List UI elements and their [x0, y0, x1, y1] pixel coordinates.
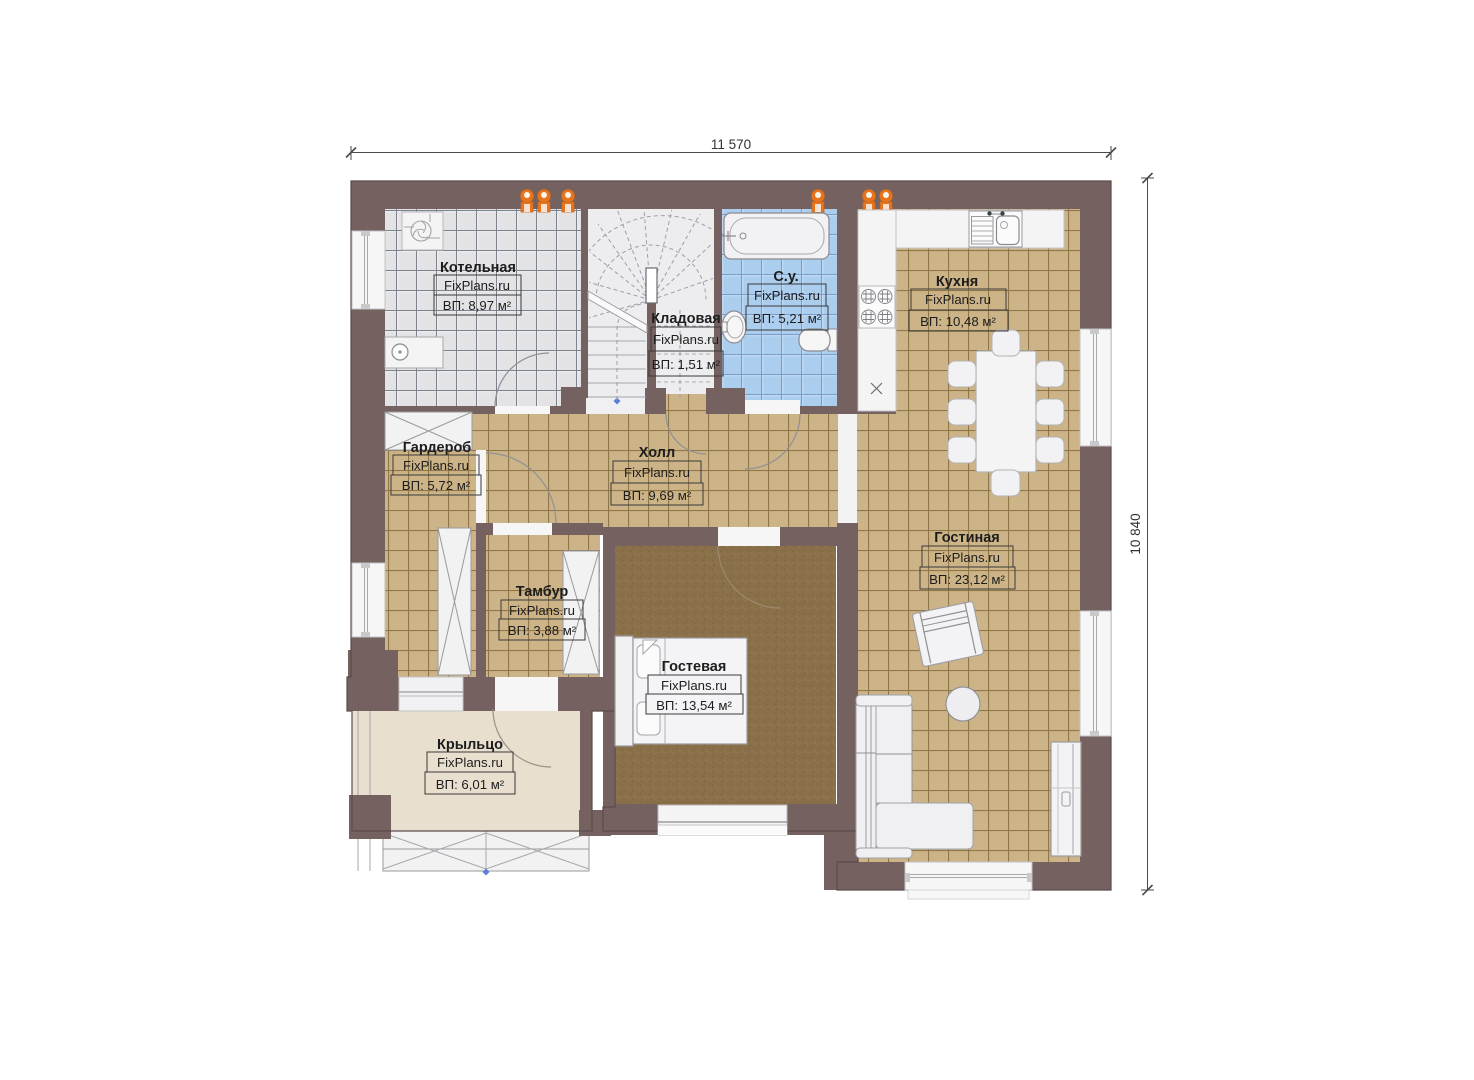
svg-text:ВП: 23,12 м²: ВП: 23,12 м²: [929, 572, 1005, 587]
svg-text:Котельная: Котельная: [440, 260, 516, 276]
svg-text:ВП: 3,88 м²: ВП: 3,88 м²: [508, 623, 577, 638]
svg-text:Кладовая: Кладовая: [651, 311, 720, 327]
svg-text:FixPlans.ru: FixPlans.ru: [661, 678, 727, 693]
svg-text:10 840: 10 840: [1128, 513, 1143, 554]
svg-text:Гардероб: Гардероб: [403, 440, 472, 456]
svg-text:ВП: 13,54 м²: ВП: 13,54 м²: [656, 698, 732, 713]
svg-text:Холл: Холл: [639, 445, 675, 461]
svg-text:ВП: 1,51 м²: ВП: 1,51 м²: [652, 357, 721, 372]
svg-text:Тамбур: Тамбур: [516, 584, 569, 600]
svg-text:FixPlans.ru: FixPlans.ru: [403, 458, 469, 473]
svg-text:FixPlans.ru: FixPlans.ru: [653, 332, 719, 347]
svg-text:FixPlans.ru: FixPlans.ru: [509, 603, 575, 618]
svg-text:11 570: 11 570: [711, 137, 751, 152]
svg-text:ВП: 9,69 м²: ВП: 9,69 м²: [623, 488, 692, 503]
svg-text:FixPlans.ru: FixPlans.ru: [754, 288, 820, 303]
svg-text:FixPlans.ru: FixPlans.ru: [934, 550, 1000, 565]
svg-text:ВП: 10,48 м²: ВП: 10,48 м²: [920, 314, 996, 329]
svg-text:Гостиная: Гостиная: [934, 530, 1000, 546]
svg-text:ВП: 8,97 м²: ВП: 8,97 м²: [443, 298, 512, 313]
svg-text:FixPlans.ru: FixPlans.ru: [444, 278, 510, 293]
svg-text:FixPlans.ru: FixPlans.ru: [925, 292, 991, 307]
svg-text:FixPlans.ru: FixPlans.ru: [624, 465, 690, 480]
svg-text:ВП: 6,01 м²: ВП: 6,01 м²: [436, 777, 505, 792]
svg-text:Крыльцо: Крыльцо: [437, 737, 503, 753]
svg-text:С.у.: С.у.: [773, 269, 798, 285]
svg-text:FixPlans.ru: FixPlans.ru: [437, 755, 503, 770]
svg-text:ВП: 5,72 м²: ВП: 5,72 м²: [402, 478, 471, 493]
svg-text:Гостевая: Гостевая: [662, 659, 727, 675]
svg-text:Кухня: Кухня: [936, 274, 978, 290]
svg-text:ВП: 5,21 м²: ВП: 5,21 м²: [753, 311, 822, 326]
